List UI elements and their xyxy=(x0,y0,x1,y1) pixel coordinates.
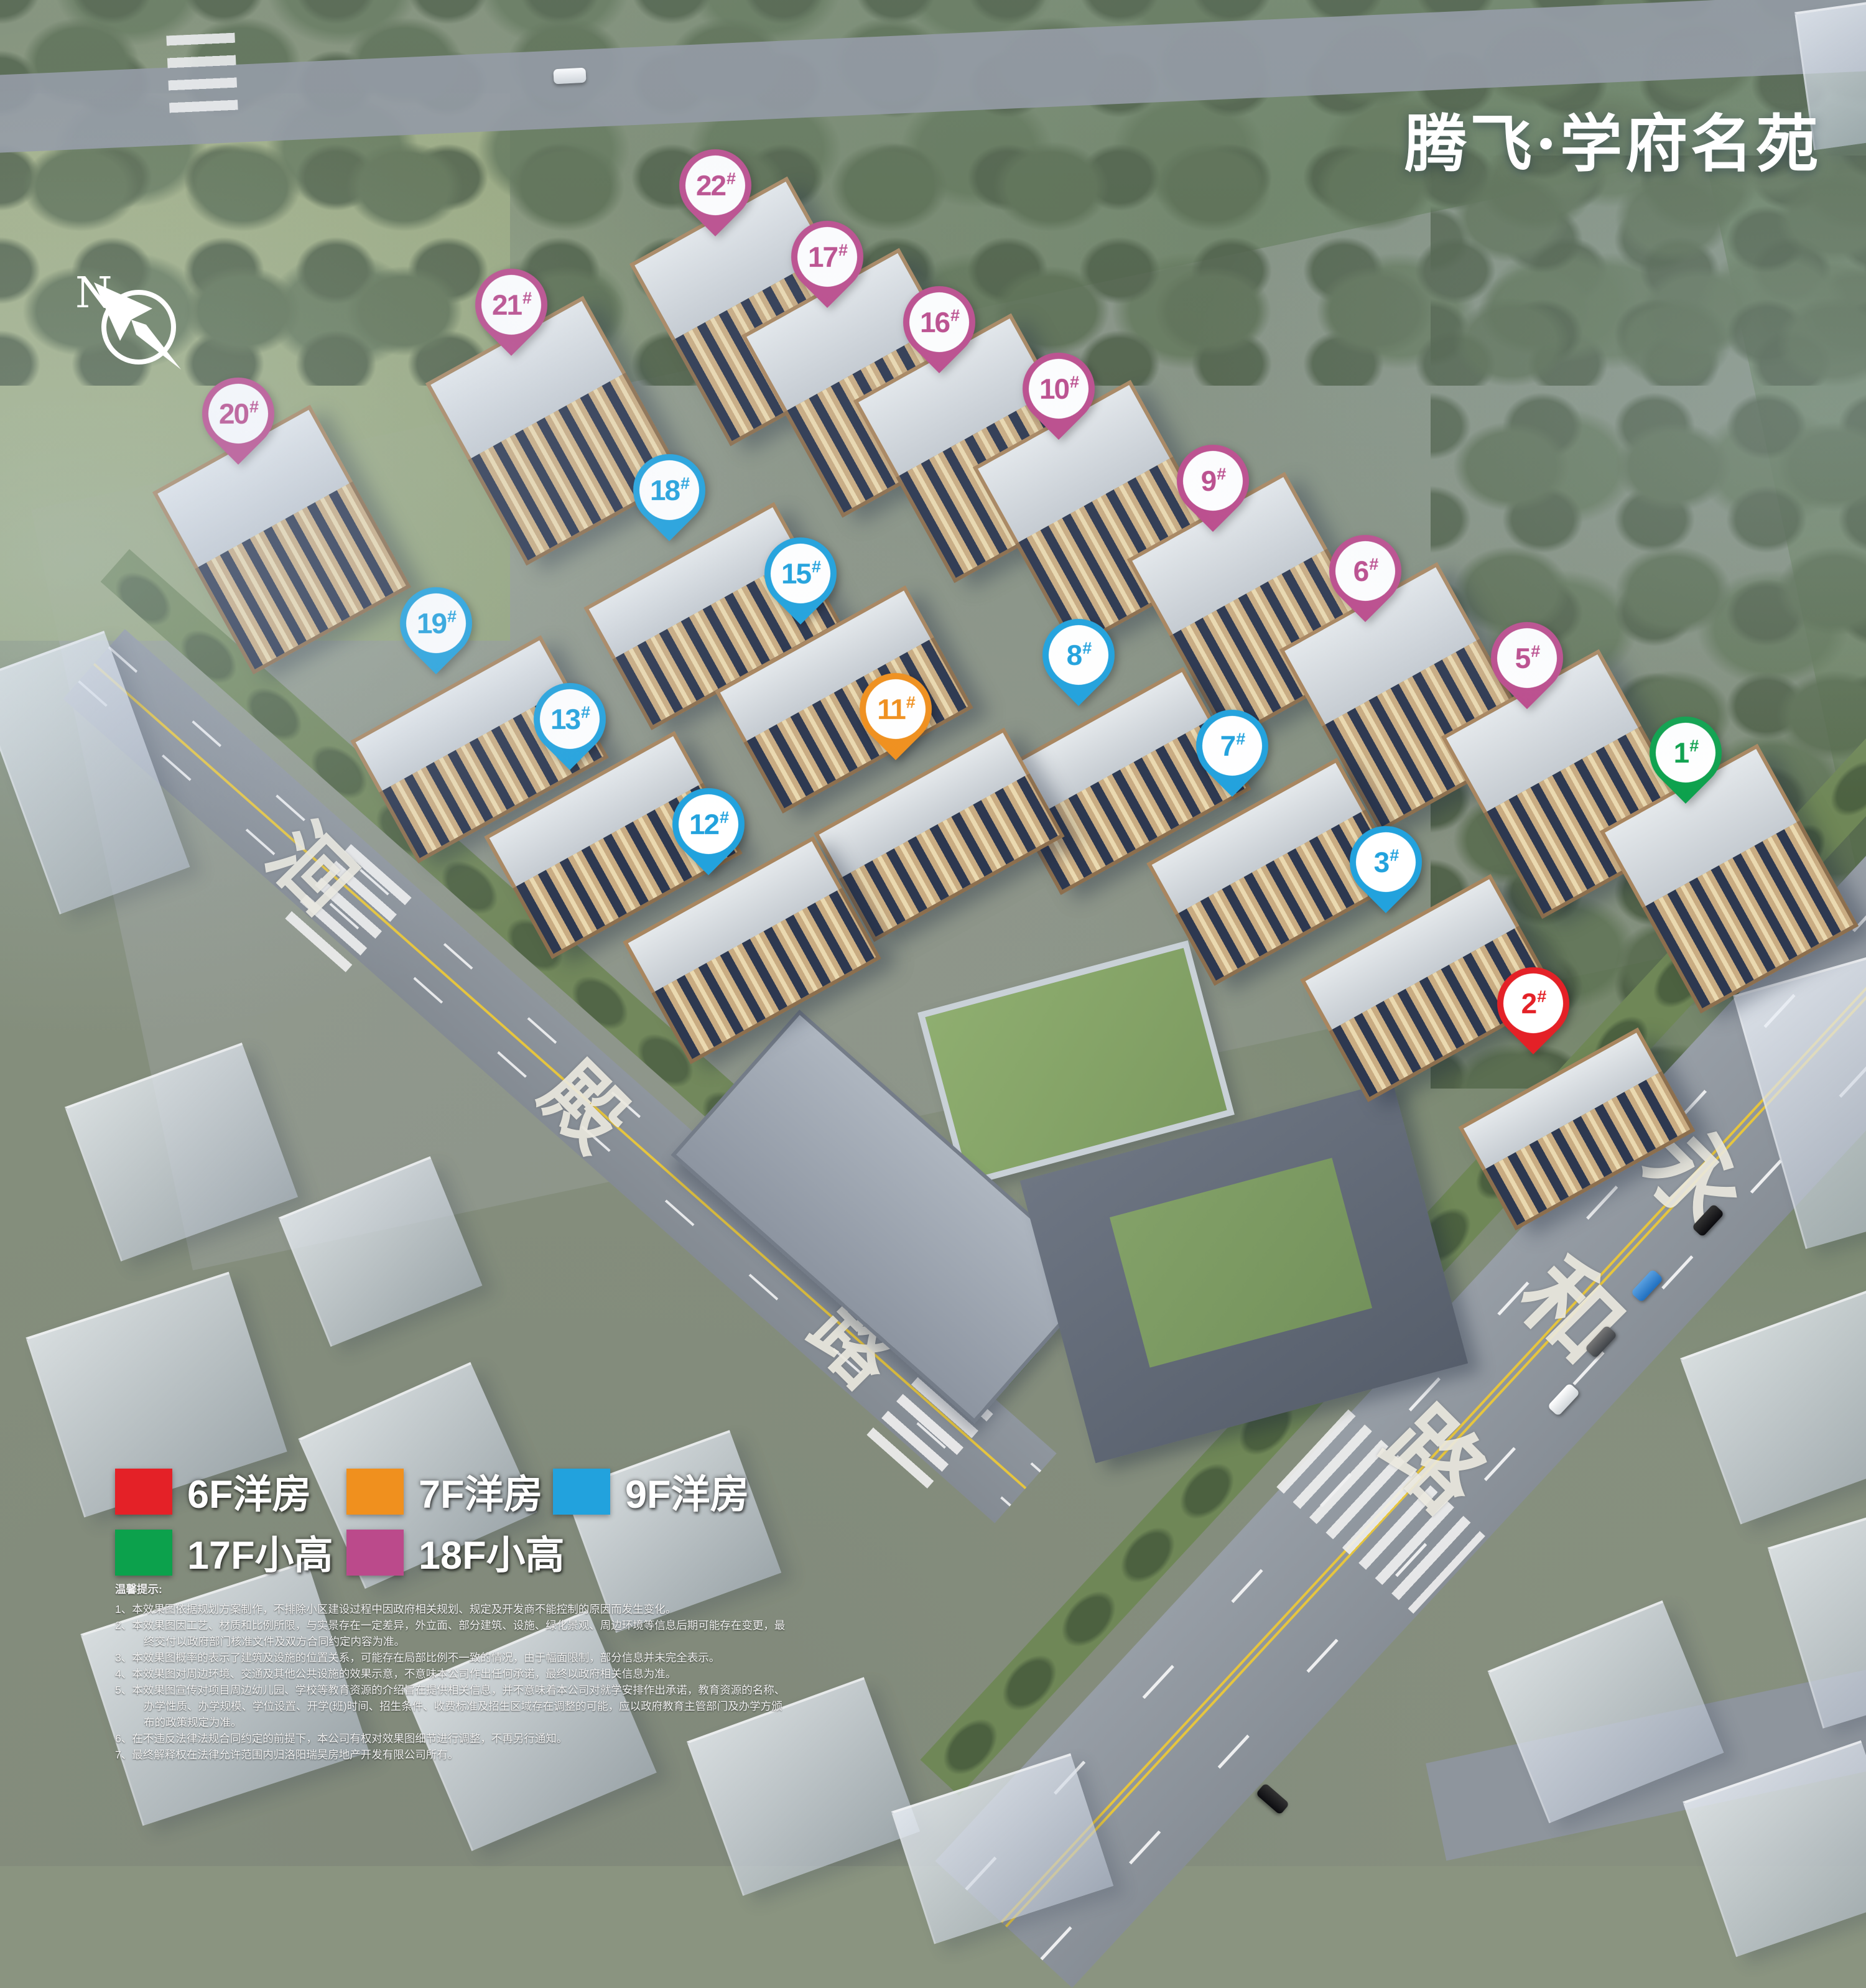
legend-item-7f: 7F洋房 xyxy=(346,1463,543,1520)
legend-swatch-17f xyxy=(115,1530,172,1576)
pin-number: 15# xyxy=(771,544,830,603)
pin-number: 6# xyxy=(1335,541,1395,601)
pin-number: 5# xyxy=(1497,628,1557,688)
pin-marker-icon: 18# xyxy=(618,439,720,541)
pin-marker-icon: 13# xyxy=(519,668,621,770)
legend-item-9f: 9F洋房 xyxy=(553,1463,750,1520)
pin-marker-icon: 12# xyxy=(657,773,759,875)
pin-marker-icon: 2# xyxy=(1482,952,1584,1054)
pin-number: 11# xyxy=(866,679,926,739)
pin-number: 13# xyxy=(540,689,600,749)
pin-number: 22# xyxy=(685,156,745,215)
legend-swatch-9f xyxy=(553,1469,610,1515)
pin-number: 19# xyxy=(406,593,466,653)
pin-marker-icon: 10# xyxy=(1008,338,1110,440)
disclaimer-item: 1、本效果图依据规划方案制作，不排除小区建设过程中因政府相关规划、规定及开发商不… xyxy=(115,1601,787,1617)
pin-number: 17# xyxy=(797,227,857,287)
site-plan-poster: { "title": "腾飞·学府名苑", "compass": {"label… xyxy=(0,0,1866,1866)
pin-number: 12# xyxy=(679,794,738,854)
disclaimer-item: 3、本效果图概率的表示了建筑及设施的位置关系，可能存在局部比例不一致的情况，由于… xyxy=(115,1650,787,1666)
pin-marker-icon: 11# xyxy=(845,658,947,760)
pin-marker-icon: 19# xyxy=(385,572,487,674)
pin-marker-icon: 8# xyxy=(1028,604,1130,706)
legend-swatch-18f xyxy=(346,1530,404,1576)
north-compass: N xyxy=(59,248,208,397)
pin-number: 2# xyxy=(1503,973,1563,1033)
pin-number: 8# xyxy=(1049,625,1108,685)
pin-marker-icon: 5# xyxy=(1476,607,1578,709)
pin-marker-icon: 6# xyxy=(1314,520,1416,622)
pin-number: 1# xyxy=(1656,723,1715,783)
pin-number: 3# xyxy=(1356,832,1416,892)
legend-item-6f: 6F洋房 xyxy=(115,1463,312,1520)
disclaimer-item: 7、最终解释权在法律允许范围内归洛阳瑞昊房地产开发有限公司所有。 xyxy=(115,1747,787,1763)
pin-marker-icon: 22# xyxy=(664,134,766,236)
legend-item-17f: 17F小高 xyxy=(115,1524,333,1581)
pin-marker-icon: 21# xyxy=(460,254,562,356)
pin-marker-icon: 9# xyxy=(1162,430,1264,532)
legend-item-18f: 18F小高 xyxy=(346,1524,565,1581)
pin-marker-icon: 3# xyxy=(1335,811,1437,913)
disclaimer-item: 5、本效果图宣传对项目周边幼儿园、学校等教育资源的介绍旨在提供相关信息，并不意味… xyxy=(115,1682,787,1730)
disclaimer-item: 2、本效果图因工艺、材质和比例所限，与实景存在一定差异，外立面、部分建筑、设施、… xyxy=(115,1617,787,1650)
pin-marker-icon: 15# xyxy=(750,523,852,625)
pin-marker-icon: 16# xyxy=(888,271,990,373)
pin-number: 9# xyxy=(1183,451,1243,511)
pin-number: 18# xyxy=(639,460,699,520)
pin-marker-icon: 17# xyxy=(776,206,878,308)
pin-marker-icon: 7# xyxy=(1181,695,1283,797)
pin-number: 20# xyxy=(208,384,268,444)
disclaimer-list: 1、本效果图依据规划方案制作，不排除小区建设过程中因政府相关规划、规定及开发商不… xyxy=(115,1601,787,1763)
disclaimer-heading: 温馨提示: xyxy=(115,1581,787,1597)
legend-swatch-6f xyxy=(115,1469,172,1515)
disclaimer-notes: 温馨提示: 1、本效果图依据规划方案制作，不排除小区建设过程中因政府相关规划、规… xyxy=(115,1581,787,1763)
pin-marker-icon: 1# xyxy=(1635,702,1737,804)
pin-number: 10# xyxy=(1029,359,1088,419)
pin-number: 7# xyxy=(1202,716,1262,776)
disclaimer-item: 4、本效果图对周边环境、交通及其他公共设施的效果示意，不意味本公司作出任何承诺，… xyxy=(115,1666,787,1682)
legend-swatch-7f xyxy=(346,1469,404,1515)
project-title: 腾飞·学府名苑 xyxy=(1404,93,1821,183)
pin-number: 21# xyxy=(481,275,541,335)
disclaimer-item: 6、在不违反法律法规合同约定的前提下，本公司有权对效果图细节进行调整，不再另行通… xyxy=(115,1730,787,1747)
pin-number: 16# xyxy=(909,292,969,352)
